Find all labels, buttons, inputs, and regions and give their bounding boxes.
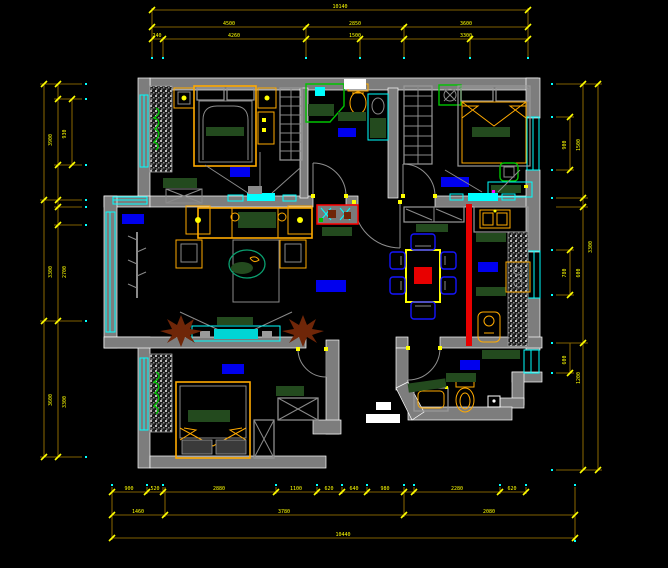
hatch-closet (150, 354, 172, 432)
dim-ticks-right (567, 81, 601, 473)
plant-stand-icon (128, 232, 146, 298)
nightstand-icon (174, 88, 194, 108)
wardrobe-icon (254, 420, 274, 458)
room-label-block (460, 360, 480, 370)
dim-label: 520 (150, 486, 159, 492)
dim-label: 1100 (290, 486, 302, 492)
dresser-icon (258, 112, 274, 144)
dim-label: 2280 (451, 486, 463, 492)
pillow (188, 410, 230, 422)
shoe-cabinet-icon (404, 207, 464, 222)
plan-note-block (366, 414, 400, 423)
shelf-closet-grid (280, 88, 302, 160)
double-bed-icon (176, 382, 250, 458)
cad-canvas[interactable]: 10140 4500 2850 3600 240 4260 1500 3300 … (0, 0, 668, 568)
dim-label: 10140 (332, 4, 347, 10)
dim-label: 1460 (132, 509, 144, 515)
coffee-table-plant-icon (229, 250, 265, 278)
dim-label: 600 (562, 355, 568, 364)
dim-label: 3300 (62, 396, 68, 408)
dim-label: 3900 (48, 134, 54, 146)
door-entry (352, 200, 402, 248)
dining-chair-icon (390, 252, 405, 269)
dim-label: 2880 (213, 486, 225, 492)
door-bedroom2 (401, 164, 437, 198)
room-living (122, 206, 346, 347)
window-bedroom2-right (527, 117, 539, 170)
dim-label: 4260 (228, 33, 240, 39)
dining-chair-icon (441, 277, 456, 294)
dim-label: 600 (576, 268, 582, 277)
door-bedroom3 (296, 347, 328, 377)
dim-label: 780 (562, 268, 568, 277)
shower-bench (308, 104, 334, 116)
room-bedroom-top-right (404, 85, 532, 197)
dim-label: 1500 (349, 33, 361, 39)
room-label-block (230, 167, 250, 177)
plan-note-block (376, 402, 391, 410)
room-kitchen (466, 204, 530, 346)
bench (416, 224, 448, 232)
dim-label: 640 (349, 486, 358, 492)
room-bedroom-bottom-left (150, 354, 318, 458)
double-bed-icon (458, 86, 530, 166)
shelf-closet-grid (404, 86, 432, 164)
dim-label: 10440 (335, 532, 350, 538)
room-label-block (338, 128, 356, 137)
side-table-icon (288, 206, 312, 234)
dim-label: 2700 (62, 266, 68, 278)
dim-label: 3300 (588, 241, 594, 253)
room-label-block (316, 280, 346, 292)
counter (476, 233, 506, 242)
floor-plan-drawing: 10140 4500 2850 3600 240 4260 1500 3300 … (0, 0, 668, 568)
room-label-block (122, 214, 144, 224)
dining-chair-icon (441, 252, 456, 269)
dim-label: 900 (562, 140, 568, 149)
room-label-block (478, 262, 498, 272)
dining-chair-icon (390, 277, 405, 294)
kitchen-sink-icon (480, 210, 510, 229)
room-label-block (222, 364, 244, 374)
soundbar (217, 317, 253, 325)
counter (476, 287, 506, 296)
dim-label: 3600 (460, 21, 472, 27)
counter (408, 378, 447, 392)
dining-chair-icon (411, 234, 435, 250)
dim-label: 3300 (460, 33, 472, 39)
dim-label: 2080 (483, 509, 495, 515)
window-bathroom2-right (524, 350, 539, 373)
tv-shelf (163, 178, 197, 188)
armchair-icon (176, 240, 202, 268)
dim-label: 2850 (349, 21, 361, 27)
dim-label: 900 (124, 486, 133, 492)
armchair-icon (280, 240, 306, 268)
double-bed-icon (194, 86, 256, 166)
dim-ticks-top (149, 7, 531, 42)
counter-run (508, 232, 528, 346)
door-bathroom2 (406, 346, 442, 380)
ac-unit (248, 186, 262, 194)
dim-label: 620 (324, 486, 333, 492)
washbasin-icon (368, 94, 388, 140)
wardrobe-icon (278, 398, 318, 420)
sliding-door-track (466, 204, 472, 346)
dim-label: 240 (152, 33, 161, 39)
paper-holder-icon (488, 396, 500, 407)
pillow (472, 127, 510, 137)
dimension-chain-right: 900 1500 3300 780 600 600 1200 (551, 81, 602, 473)
hatch-closet (150, 86, 172, 172)
dim-label: 980 (380, 486, 389, 492)
dim-label: 1500 (576, 139, 582, 151)
door-bathroom1 (311, 163, 348, 198)
dim-label: 930 (62, 129, 68, 138)
dim-label: 3600 (48, 394, 54, 406)
dim-label: 3780 (278, 509, 290, 515)
room-bedroom-top-left (150, 86, 300, 203)
pillow (206, 127, 244, 136)
dimension-chain-bottom: 900 520 2880 1100 620 640 980 2280 620 1… (109, 484, 578, 542)
dimension-chain-top: 10140 4500 2850 3600 240 4260 1500 3300 (149, 4, 531, 59)
nightstand-icon (258, 88, 276, 108)
shower-head-icon (315, 87, 325, 96)
dim-label: 4500 (223, 21, 235, 27)
dim-label: 1200 (576, 372, 582, 384)
wall-opening (344, 79, 366, 89)
counter (482, 350, 520, 359)
counter (446, 373, 476, 382)
table-mat (414, 267, 432, 284)
shelf (276, 386, 304, 396)
dimension-chain-left: 3900 3300 3600 930 2700 3300 (40, 81, 87, 460)
dim-label: 620 (507, 486, 516, 492)
bench (322, 227, 352, 236)
dim-label: 3300 (48, 266, 54, 278)
doormat-icon (317, 205, 358, 224)
counter (338, 112, 366, 121)
dining-chair-icon (411, 302, 435, 319)
